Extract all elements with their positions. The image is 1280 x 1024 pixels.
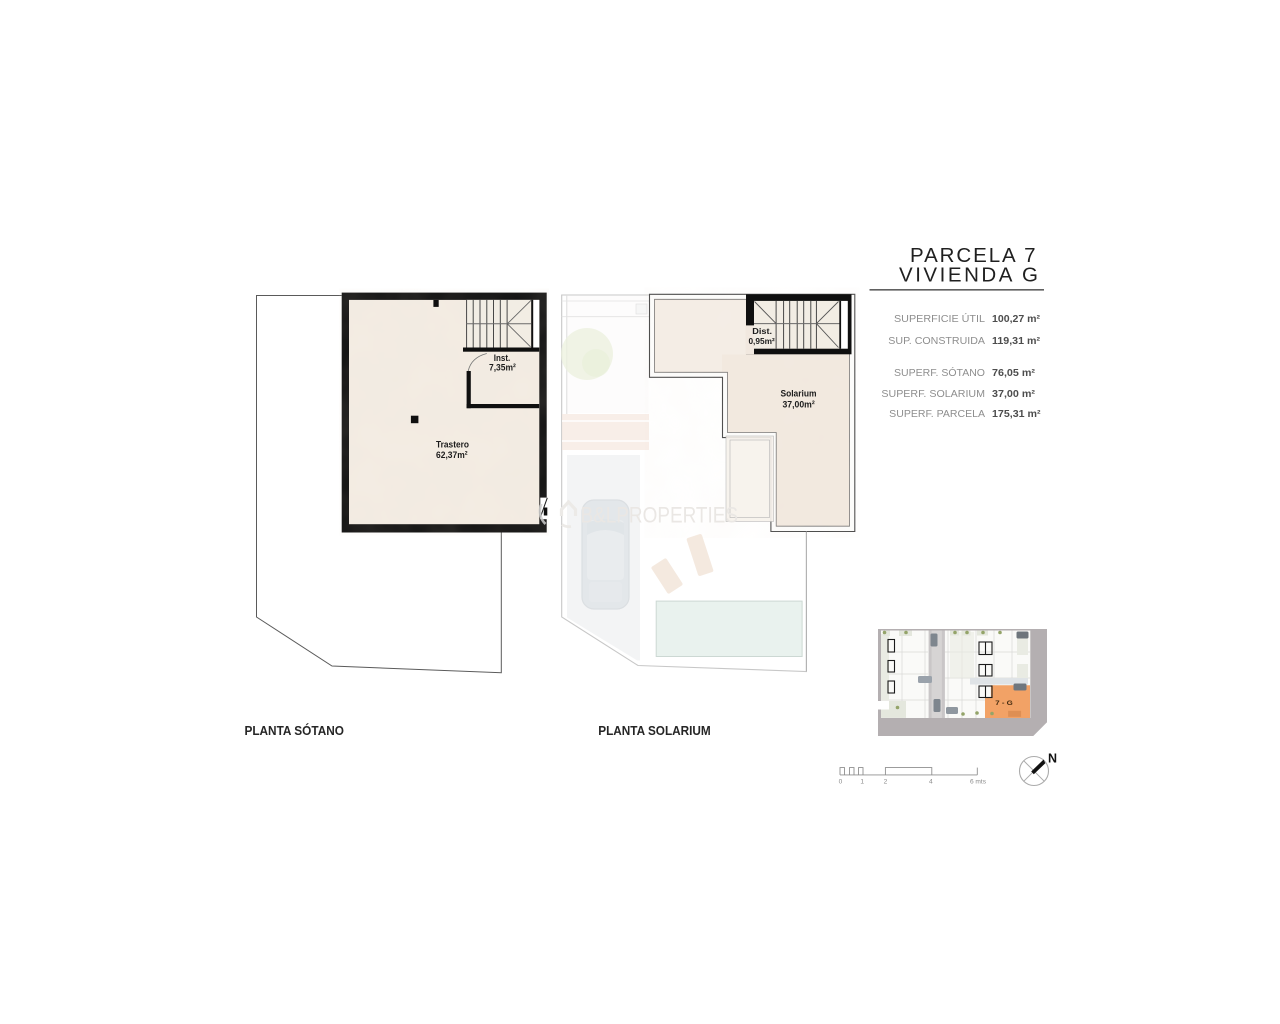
- svg-text:VIVIENDA G: VIVIENDA G: [899, 264, 1038, 287]
- svg-text:N: N: [1048, 752, 1057, 766]
- svg-text:7 - G: 7 - G: [995, 700, 1013, 707]
- svg-text:1: 1: [860, 779, 864, 786]
- svg-text:0,95m²: 0,95m²: [748, 336, 774, 346]
- svg-text:62,37m²: 62,37m²: [436, 450, 468, 461]
- svg-text:Dist.: Dist.: [752, 326, 772, 336]
- svg-text:Trastero: Trastero: [436, 439, 469, 450]
- svg-text:175,31 m²: 175,31 m²: [992, 409, 1041, 420]
- svg-text:B&LPROPERTIES: B&LPROPERTIES: [581, 503, 739, 528]
- svg-text:6 mts: 6 mts: [970, 779, 987, 786]
- svg-text:37,00 m²: 37,00 m²: [992, 389, 1036, 400]
- svg-text:37,00m²: 37,00m²: [783, 399, 815, 410]
- svg-text:SUPERF. PARCELA: SUPERF. PARCELA: [889, 409, 985, 420]
- svg-text:76,05 m²: 76,05 m²: [992, 368, 1036, 379]
- svg-text:SUP. CONSTRUIDA: SUP. CONSTRUIDA: [888, 336, 985, 347]
- svg-text:119,31 m²: 119,31 m²: [992, 336, 1041, 347]
- svg-text:100,27 m²: 100,27 m²: [992, 314, 1041, 325]
- svg-text:SUPERF. SOLARIUM: SUPERF. SOLARIUM: [881, 389, 985, 400]
- svg-text:2: 2: [884, 779, 888, 786]
- svg-text:PLANTA SÓTANO: PLANTA SÓTANO: [244, 723, 344, 738]
- svg-text:SUPERFICIE ÚTIL: SUPERFICIE ÚTIL: [894, 312, 985, 325]
- svg-text:0: 0: [839, 779, 843, 786]
- svg-text:PLANTA SOLARIUM: PLANTA SOLARIUM: [598, 723, 711, 738]
- svg-text:7,35m²: 7,35m²: [489, 361, 516, 372]
- svg-text:Solarium: Solarium: [780, 388, 816, 399]
- svg-text:4: 4: [929, 779, 933, 786]
- svg-text:SUPERF. SÓTANO: SUPERF. SÓTANO: [894, 366, 985, 379]
